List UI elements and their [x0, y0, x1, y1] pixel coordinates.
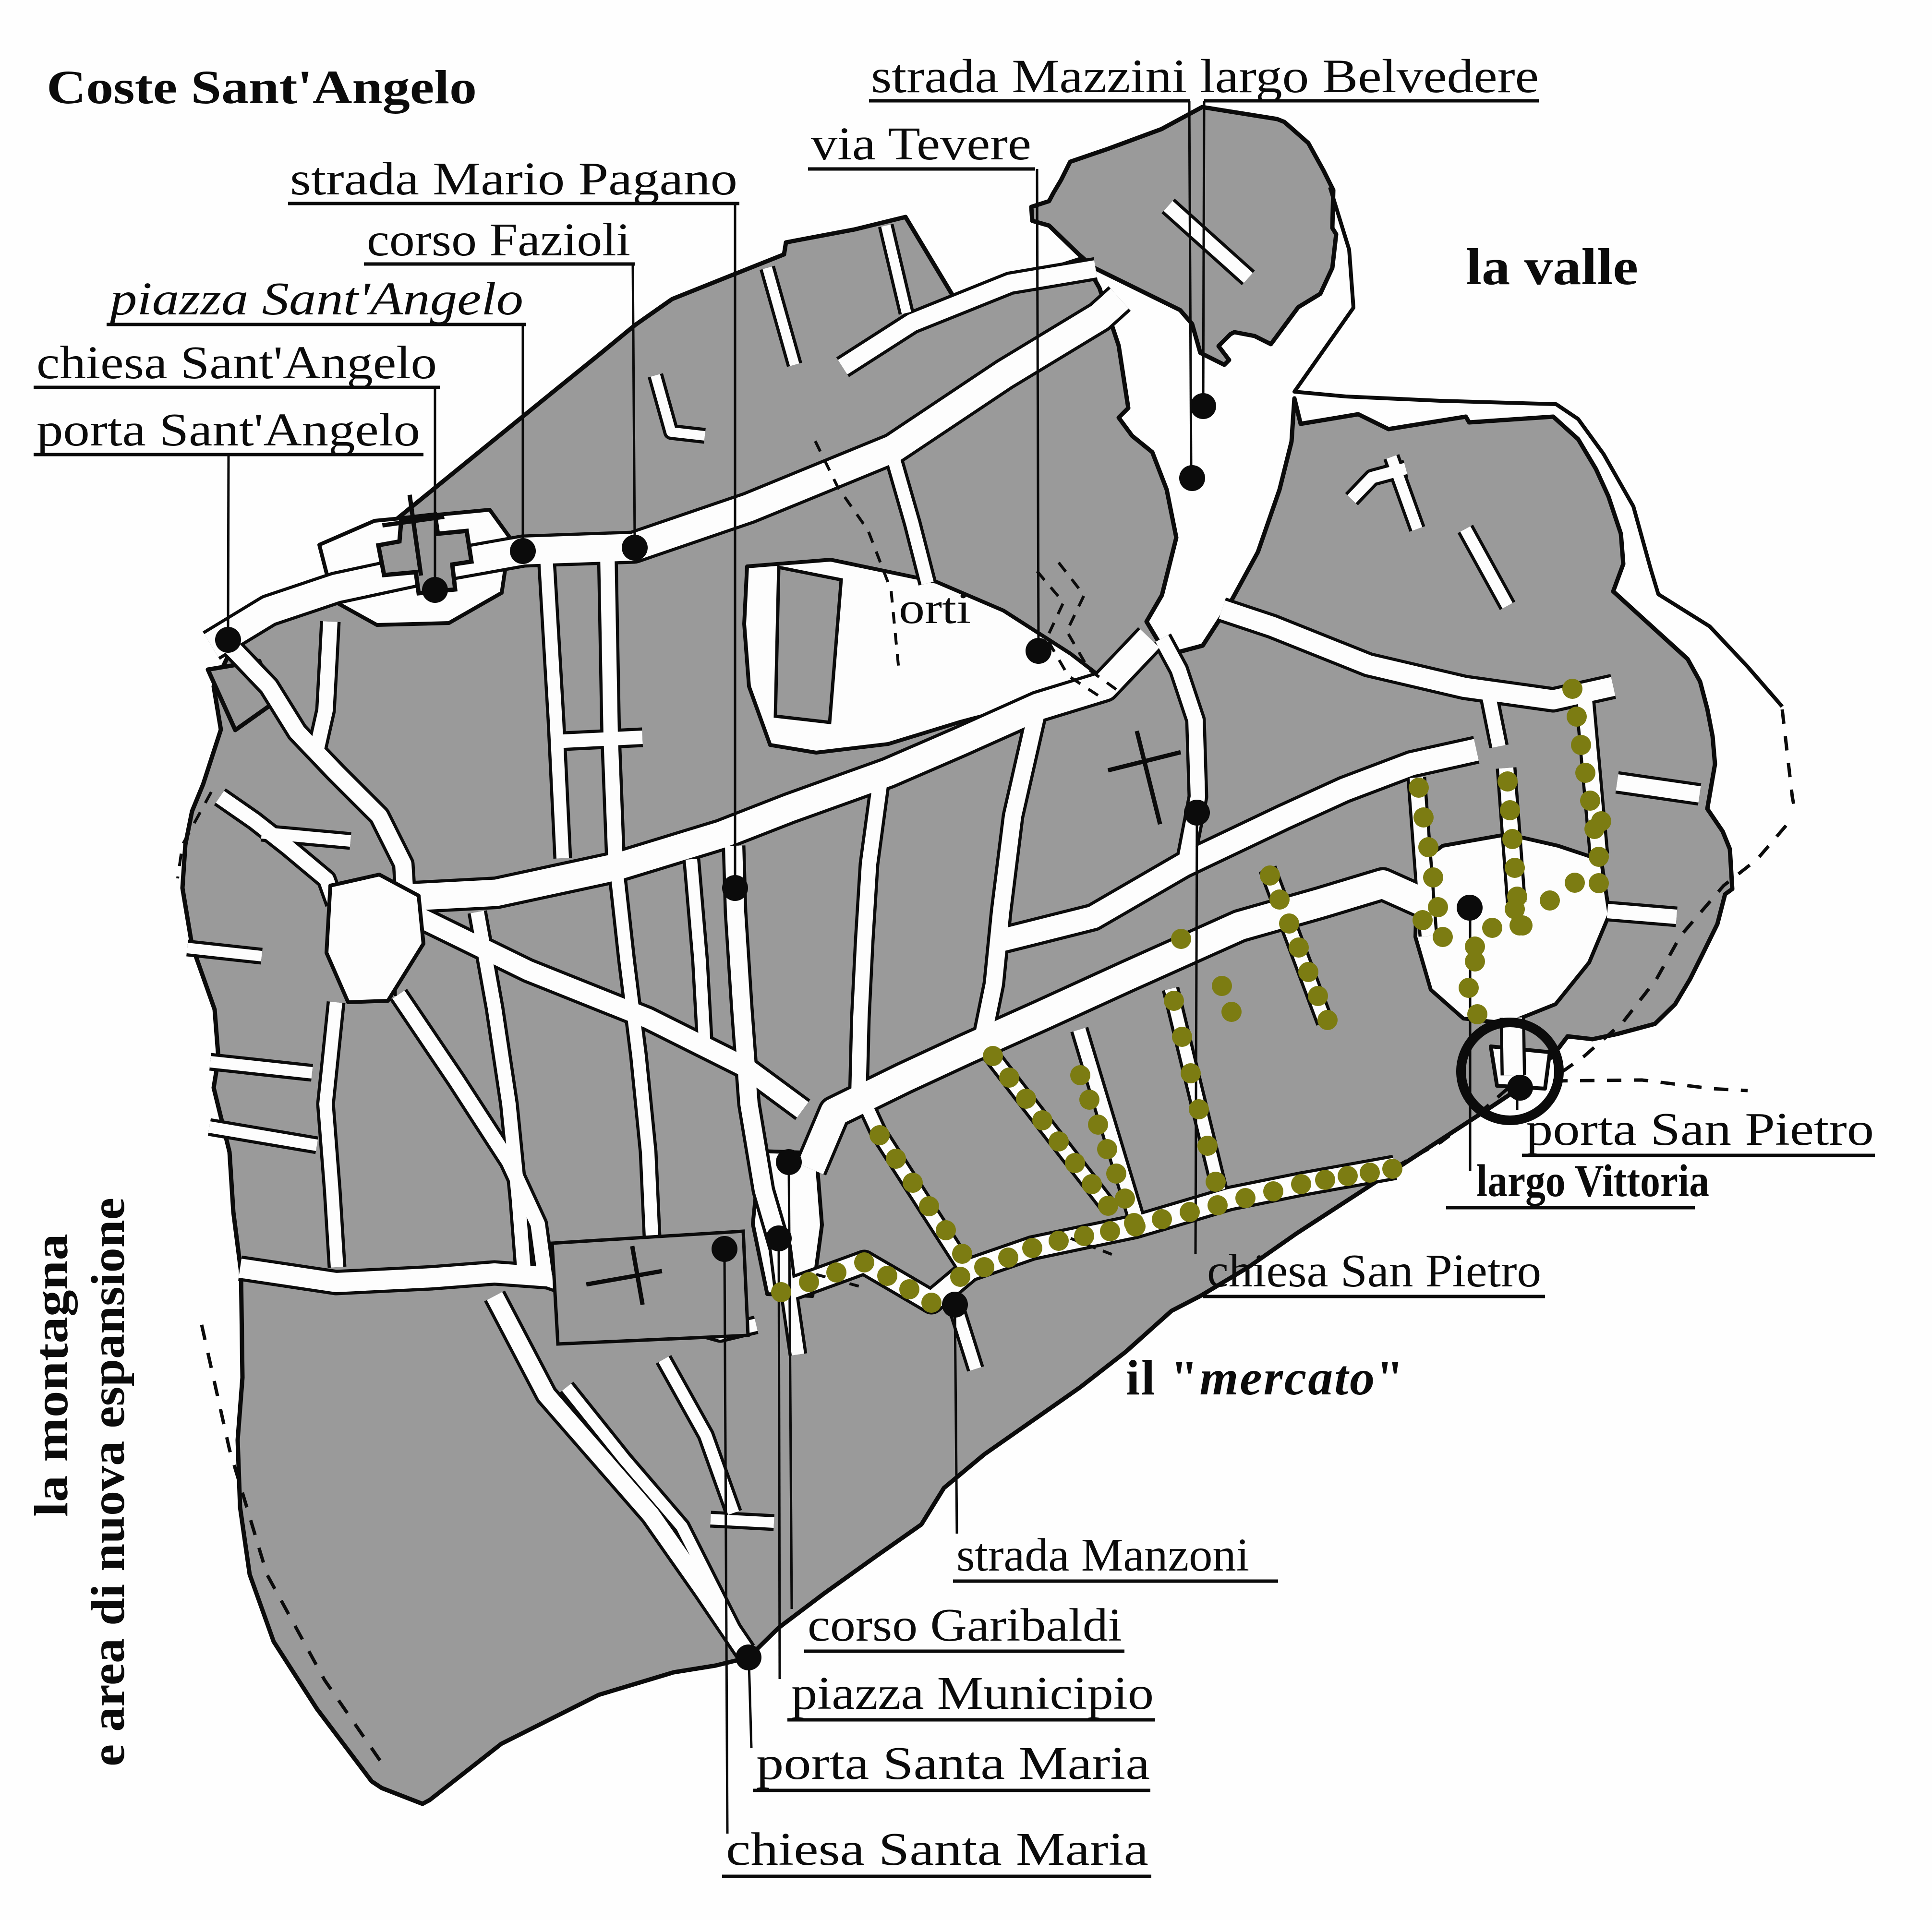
svg-text:Coste Sant'Angelo: Coste Sant'Angelo	[47, 60, 477, 114]
svg-text:largo Vittoria: largo Vittoria	[1476, 1155, 1709, 1206]
svg-text:chiesa Santa Maria: chiesa Santa Maria	[726, 1824, 1148, 1875]
svg-text:e area di nuova espansione: e area di nuova espansione	[81, 1198, 134, 1766]
svg-text:chiesa Sant'Angelo: chiesa Sant'Angelo	[36, 337, 437, 388]
svg-text:corso Garibaldi: corso Garibaldi	[808, 1599, 1122, 1651]
svg-text:strada Manzoni: strada Manzoni	[956, 1529, 1249, 1581]
svg-text:via Tevere: via Tevere	[811, 118, 1031, 169]
svg-text:il "mercato": il "mercato"	[1126, 1350, 1405, 1405]
svg-text:corso Fazioli: corso Fazioli	[367, 214, 630, 265]
svg-text:piazza Municipio: piazza Municipio	[791, 1668, 1154, 1719]
svg-text:piazza Sant'Angelo: piazza Sant'Angelo	[107, 273, 523, 324]
svg-text:strada Mazzini largo Belvedere: strada Mazzini largo Belvedere	[871, 49, 1539, 103]
svg-text:porta San Pietro: porta San Pietro	[1526, 1104, 1874, 1155]
svg-text:la montagna: la montagna	[24, 1234, 78, 1517]
svg-text:porta Santa Maria: porta Santa Maria	[756, 1738, 1150, 1789]
svg-text:la valle: la valle	[1466, 239, 1638, 296]
svg-text:chiesa San Pietro: chiesa San Pietro	[1207, 1245, 1541, 1296]
svg-text:porta Sant'Angelo: porta Sant'Angelo	[36, 404, 420, 456]
svg-text:orti: orti	[899, 584, 971, 633]
svg-text:strada Mario Pagano: strada Mario Pagano	[290, 153, 737, 204]
